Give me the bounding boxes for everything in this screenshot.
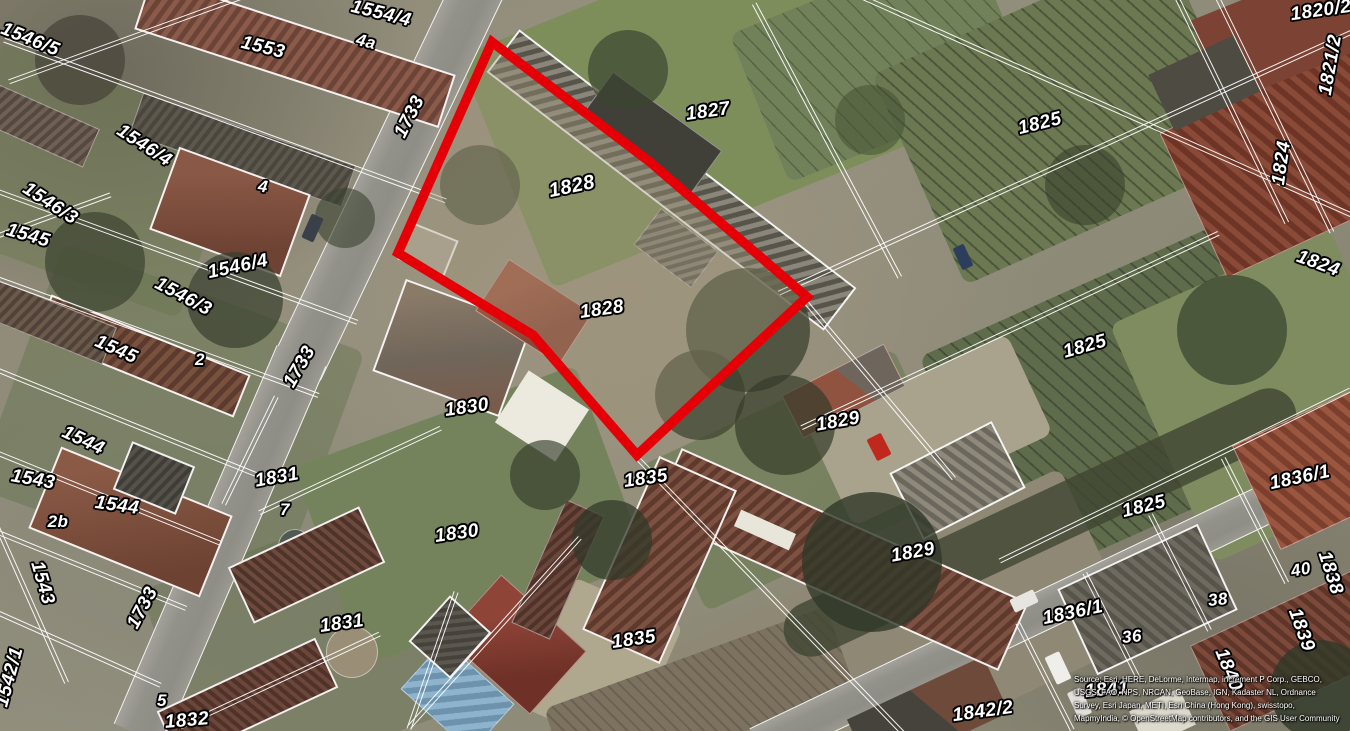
- parcel-label-1546-3: 1546/3: [18, 178, 81, 230]
- parcel-label-1839: 1839: [1283, 605, 1319, 654]
- parcel-label-1830: 1830: [434, 520, 481, 548]
- parcel-label-1835: 1835: [623, 465, 670, 493]
- parcel-label-1828: 1828: [547, 171, 597, 203]
- parcel-label-1543: 1543: [25, 559, 58, 608]
- parcel-label-1546-3: 1546/3: [151, 273, 215, 321]
- parcel-label-1820-2: 1820/2: [1289, 0, 1350, 26]
- parcel-label-1842-2: 1842/2: [951, 697, 1015, 727]
- parcel-label-1836-1: 1836/1: [1041, 596, 1105, 630]
- parcel-label-1821-2: 1821/2: [1315, 33, 1347, 97]
- parcel-label-1546-4: 1546/4: [112, 120, 175, 172]
- parcel-label-1546-5: 1546/5: [0, 18, 62, 61]
- parcel-label-7: 7: [280, 500, 290, 520]
- parcel-label-1544: 1544: [94, 492, 141, 520]
- parcel-label-2b: 2b: [48, 512, 69, 532]
- parcel-label-layer: 1546/515531554/44a1733182718251820/21821…: [0, 0, 1350, 731]
- parcel-label-1542-1: 1542/1: [0, 645, 29, 710]
- parcel-label-1733: 1733: [279, 342, 320, 391]
- parcel-label-1553: 1553: [239, 32, 287, 64]
- parcel-label-5: 5: [157, 691, 167, 711]
- map-attribution: Source: Esri, HERE, DeLorme, Intermap, i…: [1074, 674, 1342, 726]
- parcel-label-1824: 1824: [1293, 246, 1342, 282]
- parcel-label-40: 40: [1289, 558, 1312, 581]
- parcel-label-1825: 1825: [1120, 491, 1168, 523]
- parcel-label-1838: 1838: [1313, 549, 1348, 598]
- parcel-label-1831: 1831: [319, 610, 366, 638]
- parcel-label-4: 4: [257, 176, 270, 197]
- parcel-label-1733: 1733: [390, 92, 430, 141]
- parcel-label-1829: 1829: [814, 407, 861, 436]
- parcel-label-1545: 1545: [91, 331, 140, 369]
- parcel-label-1828: 1828: [579, 296, 626, 324]
- parcel-label-1836-1: 1836/1: [1268, 461, 1332, 495]
- parcel-label-1545: 1545: [4, 219, 53, 252]
- parcel-label-1546-4: 1546/4: [206, 250, 270, 284]
- parcel-label-1543: 1543: [9, 465, 56, 494]
- map-canvas[interactable]: 1546/515531554/44a1733182718251820/21821…: [0, 0, 1350, 731]
- parcel-label-1835: 1835: [611, 626, 658, 654]
- parcel-label-1825: 1825: [1016, 108, 1064, 140]
- parcel-label-36: 36: [1121, 626, 1143, 648]
- parcel-label-2: 2: [195, 350, 205, 370]
- parcel-label-1544: 1544: [58, 422, 107, 461]
- parcel-label-1829: 1829: [889, 538, 936, 567]
- parcel-label-4a: 4a: [354, 30, 378, 54]
- parcel-label-1554-4: 1554/4: [349, 0, 414, 32]
- parcel-label-1830: 1830: [444, 394, 491, 422]
- parcel-label-1832: 1832: [164, 708, 210, 731]
- parcel-label-1825: 1825: [1061, 330, 1110, 363]
- parcel-label-1733: 1733: [123, 583, 163, 632]
- parcel-label-1831: 1831: [253, 463, 300, 492]
- parcel-label-1824: 1824: [1268, 140, 1296, 187]
- parcel-label-1827: 1827: [685, 98, 732, 126]
- parcel-label-38: 38: [1207, 589, 1229, 611]
